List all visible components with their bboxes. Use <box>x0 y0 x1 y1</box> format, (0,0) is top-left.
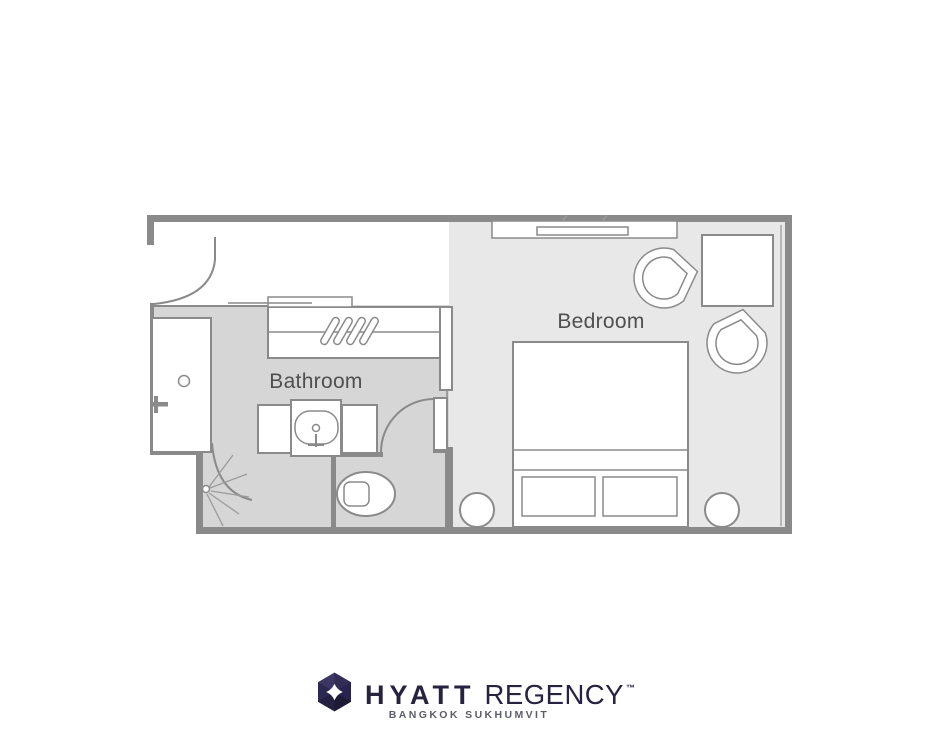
wardrobe-panel-icon <box>440 307 452 390</box>
closet-slider-panel <box>268 297 352 307</box>
trademark-symbol: ™ <box>626 683 635 693</box>
pillow-icon <box>603 477 677 516</box>
entry-door-icon <box>154 237 215 304</box>
bed-icon <box>513 342 688 527</box>
logo-wordmark: HYATT REGENCY ™ <box>365 679 635 709</box>
wall-left-lower <box>196 450 203 534</box>
shower-stall-icon <box>152 318 211 452</box>
wall-right <box>785 215 792 534</box>
entry-door-swing <box>154 260 215 304</box>
logo-brand-suffix: REGENCY <box>485 679 625 711</box>
wall-top <box>147 215 792 222</box>
vanity-icon <box>258 400 377 456</box>
wall-toilet-west <box>331 452 336 532</box>
logo-subtitle: BANGKOK SUKHUMVIT <box>389 709 549 721</box>
logo-brand: HYATT <box>365 680 476 711</box>
toilet-icon <box>337 472 395 516</box>
room-label-bathroom: Bathroom <box>269 370 362 394</box>
wall-toilet-east <box>445 450 453 530</box>
pillow-icon <box>522 477 595 516</box>
room-label-bedroom: Bedroom <box>557 310 644 334</box>
nightstand-icon <box>705 493 739 527</box>
shower-faucet-handle <box>154 396 158 413</box>
tv-icon <box>537 227 628 235</box>
vanity-left-cabinet <box>258 405 291 453</box>
sink-drain <box>313 425 320 432</box>
nightstand-icon <box>460 493 494 527</box>
toilet-seat <box>344 482 369 506</box>
wall-left-stub <box>147 215 154 245</box>
tv-console-icon <box>492 221 677 238</box>
floorplan-page: Bathroom Bedroom HYATT REGENCY ™ BANGKOK… <box>0 0 940 752</box>
shower-drain <box>179 376 190 387</box>
bathroom-door-leaf <box>434 398 447 450</box>
vanity-right-cabinet <box>342 405 377 453</box>
floor-plan <box>0 0 940 752</box>
wall-bottom <box>196 527 792 534</box>
hyatt-hexagon-icon <box>318 672 351 712</box>
spray-head <box>203 486 210 493</box>
side-table-icon <box>702 235 773 306</box>
hyatt-regency-logo: HYATT REGENCY ™ BANGKOK SUKHUMVIT <box>0 0 940 80</box>
